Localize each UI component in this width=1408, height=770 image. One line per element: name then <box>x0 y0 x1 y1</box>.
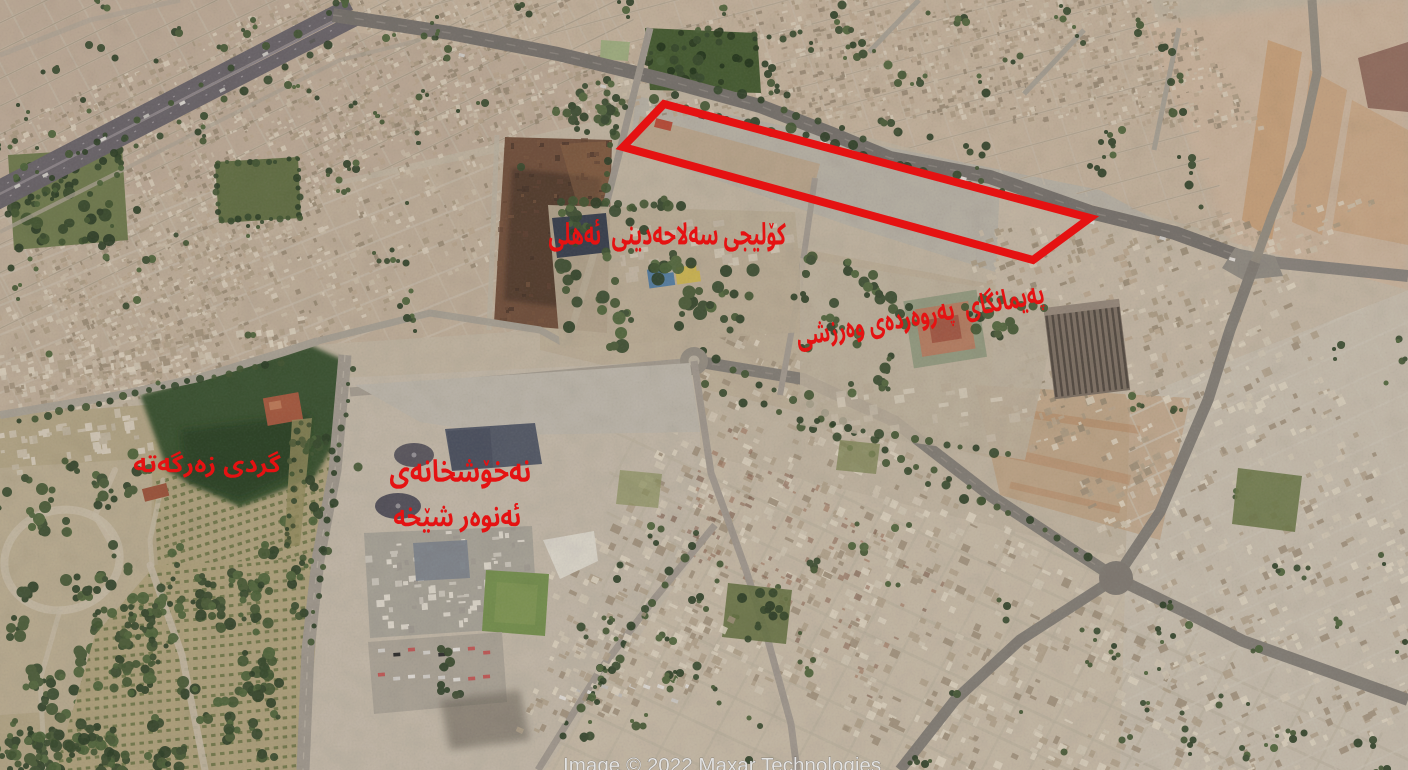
svg-text:Image © 2022 Maxar Technologie: Image © 2022 Maxar Technologies <box>563 754 881 770</box>
